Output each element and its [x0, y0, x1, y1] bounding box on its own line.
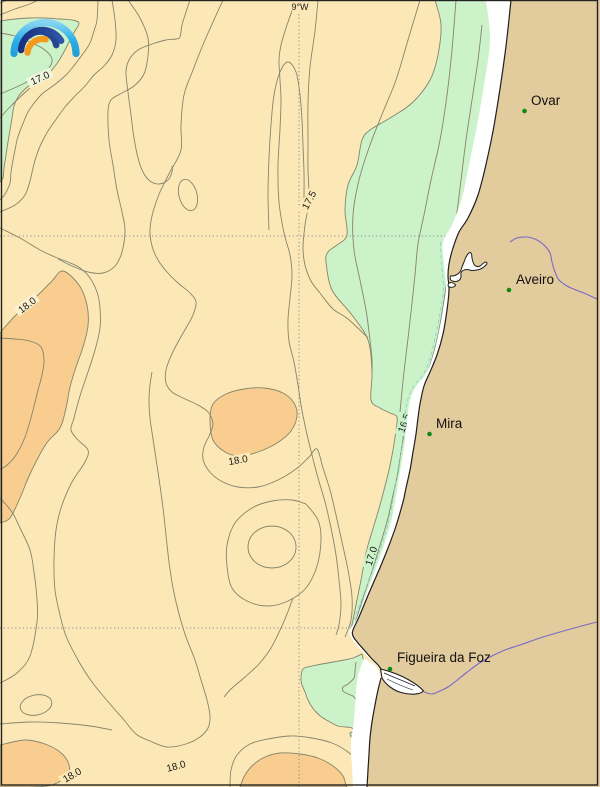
- svg-text:Mira: Mira: [436, 416, 463, 431]
- svg-text:9°W: 9°W: [291, 2, 309, 12]
- svg-text:Ovar: Ovar: [531, 93, 561, 108]
- svg-text:Aveiro: Aveiro: [516, 272, 554, 287]
- svg-text:Figueira da Foz: Figueira da Foz: [397, 650, 491, 665]
